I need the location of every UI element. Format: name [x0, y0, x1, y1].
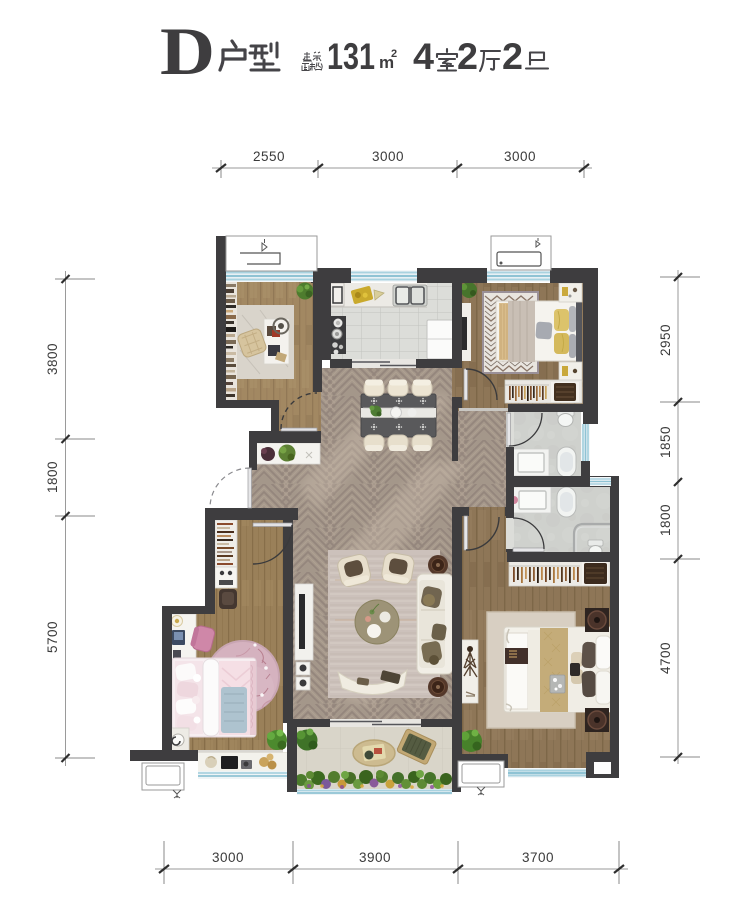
svg-text:3900: 3900: [359, 850, 391, 865]
svg-text:2950: 2950: [658, 324, 673, 356]
svg-text:4700: 4700: [658, 642, 673, 674]
svg-text:3800: 3800: [45, 343, 60, 375]
svg-text:3000: 3000: [372, 149, 404, 164]
svg-text:2550: 2550: [253, 149, 285, 164]
svg-text:2: 2: [391, 48, 397, 60]
svg-text:2: 2: [457, 35, 478, 77]
svg-text:4: 4: [413, 35, 434, 77]
svg-text:131: 131: [327, 35, 375, 77]
svg-text:D: D: [160, 13, 215, 89]
svg-text:3000: 3000: [212, 850, 244, 865]
svg-text:1800: 1800: [45, 461, 60, 493]
svg-text:1850: 1850: [658, 426, 673, 458]
svg-text:2: 2: [502, 35, 523, 77]
svg-text:5700: 5700: [45, 621, 60, 653]
svg-text:1800: 1800: [658, 504, 673, 536]
svg-text:3700: 3700: [522, 850, 554, 865]
svg-text:3000: 3000: [504, 149, 536, 164]
